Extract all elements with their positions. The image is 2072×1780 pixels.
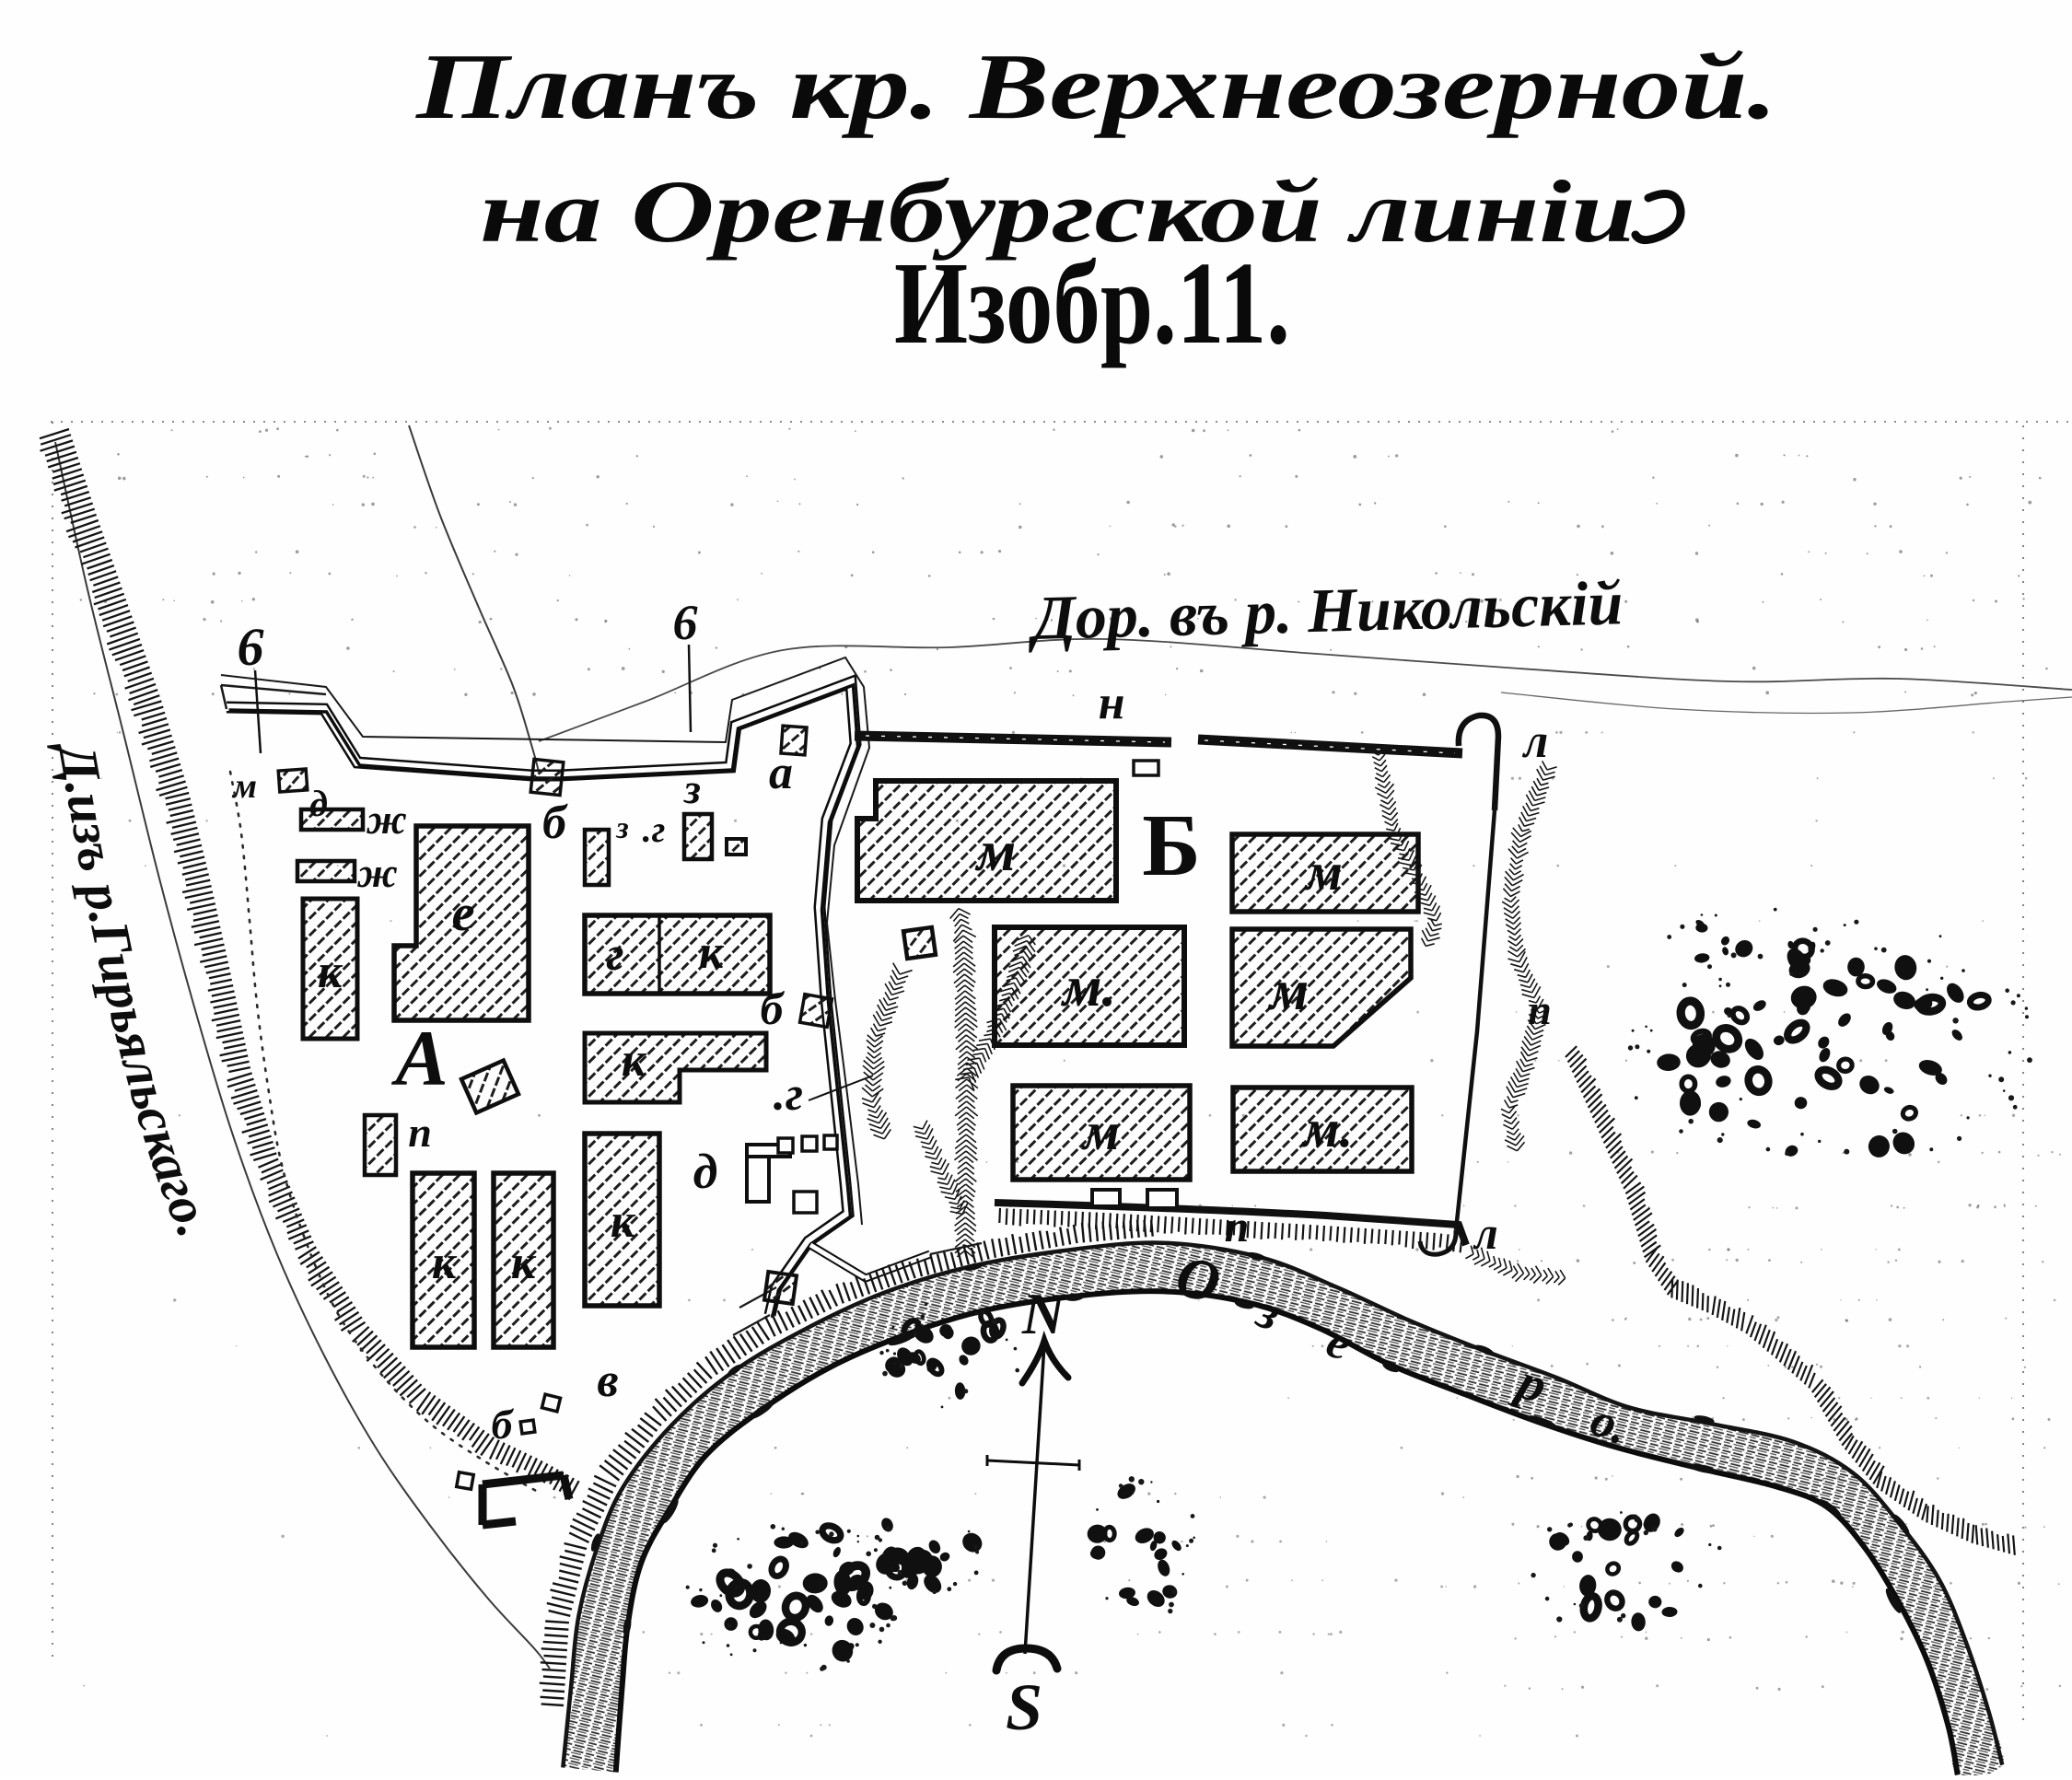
svg-text:.г: .г xyxy=(643,809,666,850)
svg-text:з: з xyxy=(682,765,701,812)
svg-text:л: л xyxy=(1522,715,1549,768)
svg-text:н: н xyxy=(1099,677,1125,729)
svg-text:д: д xyxy=(309,783,328,824)
svg-text:м: м xyxy=(1081,1101,1120,1161)
svg-text:Изобр.11.: Изобр.11. xyxy=(894,238,1290,368)
svg-text:б: б xyxy=(492,1401,515,1448)
svg-text:Планъ кр. Верхнеозерной.: Планъ кр. Верхнеозерной. xyxy=(415,35,1777,139)
svg-text:к: к xyxy=(318,946,343,998)
svg-text:к: к xyxy=(611,1195,636,1248)
svg-text:Б: Б xyxy=(1142,796,1200,894)
svg-text:м.: м. xyxy=(1060,956,1116,1018)
svg-text:з: з xyxy=(615,811,628,845)
svg-text:к: к xyxy=(699,926,725,979)
svg-text:а: а xyxy=(769,747,793,799)
svg-text:п: п xyxy=(1225,1203,1250,1251)
svg-text:п: п xyxy=(408,1109,432,1156)
svg-text:в: в xyxy=(597,1355,618,1407)
svg-text:д: д xyxy=(693,1144,718,1199)
svg-text:м: м xyxy=(231,767,257,806)
svg-text:м: м xyxy=(1267,960,1309,1022)
svg-text:ж: ж xyxy=(356,849,398,896)
svg-text:.г: .г xyxy=(774,1068,803,1121)
svg-text:к: к xyxy=(432,1237,458,1289)
svg-text:к: к xyxy=(511,1237,537,1289)
svg-text:м.: м. xyxy=(1301,1099,1353,1158)
svg-text:м: м xyxy=(974,820,1016,883)
svg-text:ж: ж xyxy=(366,796,407,843)
svg-text:г: г xyxy=(606,928,623,981)
svg-text:л: л xyxy=(1473,1207,1498,1259)
svg-text:6: 6 xyxy=(238,617,264,677)
svg-text:б: б xyxy=(761,983,786,1034)
svg-text:м: м xyxy=(1304,842,1343,902)
svg-text:е: е xyxy=(452,885,475,942)
svg-text:А: А xyxy=(390,1014,448,1102)
svg-text:6: 6 xyxy=(673,595,698,650)
svg-text:б: б xyxy=(542,797,568,849)
svg-text:к: к xyxy=(622,1034,647,1087)
svg-text:S: S xyxy=(1006,1670,1042,1744)
